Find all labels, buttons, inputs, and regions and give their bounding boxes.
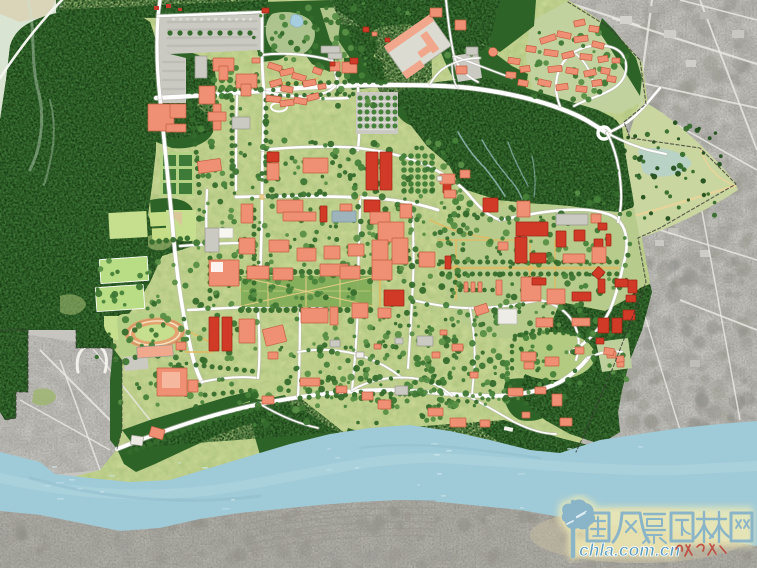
svg-text:chla.com.cn: chla.com.cn [579, 540, 680, 560]
